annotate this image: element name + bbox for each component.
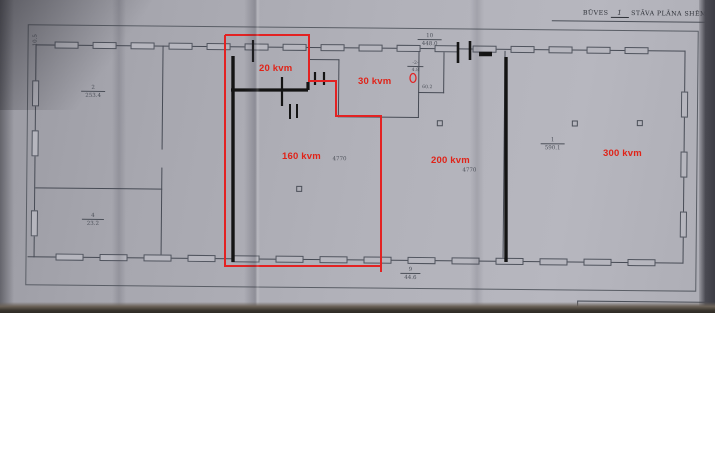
area-label-30kvm: 30 kvm [358,76,391,87]
area-label-300kvm: 300 kvm [603,148,642,159]
red-door-mark [410,74,416,83]
floorplan-photo: BŪVES 1 STĀVA PLĀNA SHĒMA [0,0,715,313]
screenshot-root: BŪVES 1 STĀVA PLĀNA SHĒMA [0,0,715,473]
area-label-20kvm: 20 kvm [259,63,292,74]
area-label-200kvm: 200 kvm [431,155,470,166]
area-label-160kvm: 160 kvm [282,151,321,162]
